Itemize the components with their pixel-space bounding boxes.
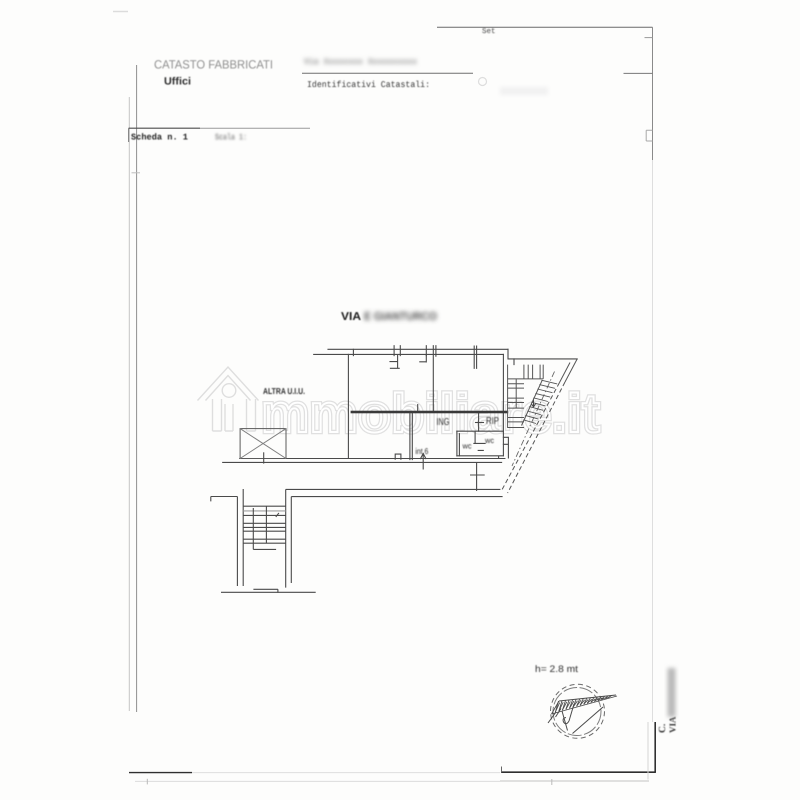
svg-text:VIA: VIA — [668, 716, 678, 733]
svg-text:VIA: VIA — [341, 311, 361, 323]
svg-text:Set: Set — [482, 27, 496, 36]
svg-text:Identificativi Catastali:: Identificativi Catastali: — [307, 80, 430, 90]
svg-text:RIP: RIP — [486, 416, 499, 427]
svg-text:h= 2.8 mt: h= 2.8 mt — [535, 664, 578, 675]
svg-text:ING: ING — [437, 417, 450, 428]
svg-text:Scheda n. 1: Scheda n. 1 — [131, 133, 188, 143]
svg-text:wc: wc — [462, 442, 472, 451]
svg-text:wc: wc — [484, 436, 494, 445]
svg-text:Via Xxxxxxxx Xxxxxxxxxx: Via Xxxxxxxx Xxxxxxxxxx — [304, 57, 417, 67]
svg-text:Scala 1:: Scala 1: — [215, 133, 247, 143]
svg-text:E GIANTURCO: E GIANTURCO — [364, 311, 437, 323]
svg-text:int 6: int 6 — [415, 446, 428, 456]
svg-text:Uffici: Uffici — [164, 76, 191, 88]
svg-text:C.: C. — [658, 724, 668, 733]
svg-text:ALTRA U.I.U.: ALTRA U.I.U. — [263, 386, 305, 396]
svg-text:CATASTO FABBRICATI: CATASTO FABBRICATI — [154, 58, 273, 72]
